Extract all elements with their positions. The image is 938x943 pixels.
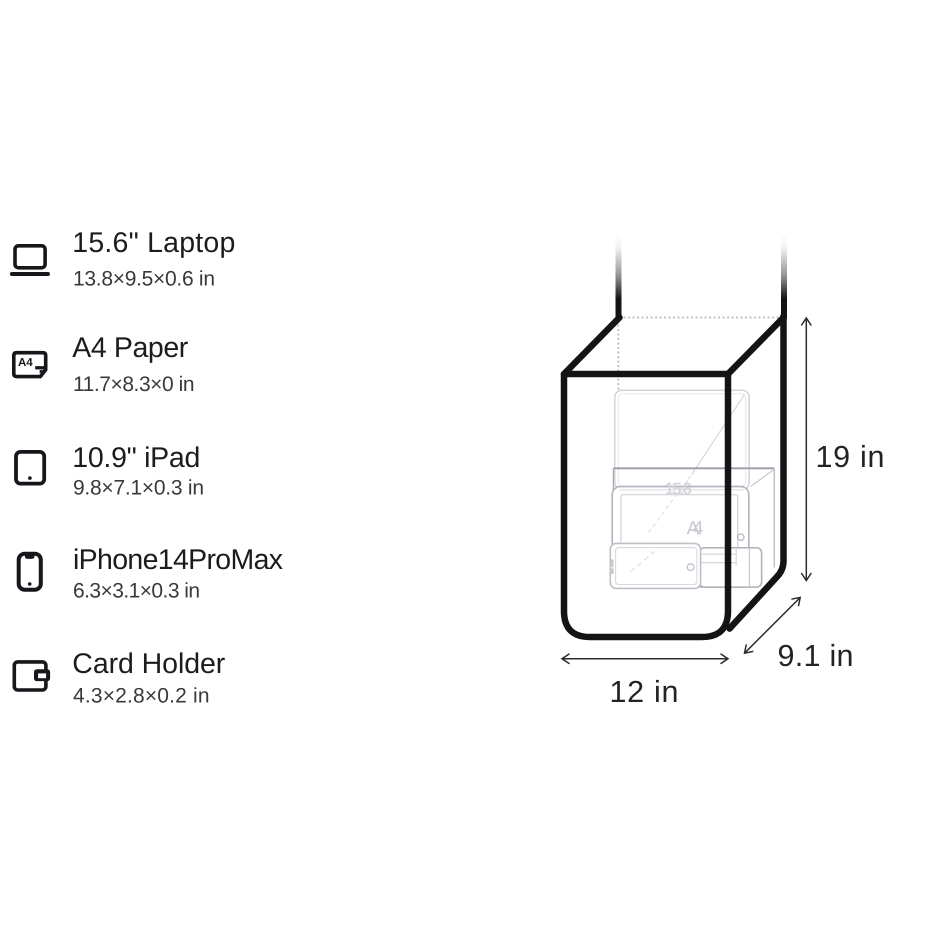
svg-text:iPhone14ProMax: iPhone14ProMax (73, 544, 283, 576)
svg-text:19 in: 19 in (816, 440, 885, 474)
svg-text:9.1 in: 9.1 in (778, 639, 854, 673)
svg-text:12 in: 12 in (610, 675, 679, 709)
svg-text:A4: A4 (687, 518, 704, 540)
svg-text:A4 Paper: A4 Paper (72, 332, 189, 364)
svg-text:Card Holder: Card Holder (72, 648, 226, 680)
svg-text:13.8×9.5×0.6 in: 13.8×9.5×0.6 in (73, 268, 215, 291)
svg-text:10.9" iPad: 10.9" iPad (72, 442, 200, 474)
svg-text:11.7×8.3×0 in: 11.7×8.3×0 in (73, 373, 195, 396)
svg-text:15.6: 15.6 (665, 480, 693, 499)
svg-text:4.3×2.8×0.2 in: 4.3×2.8×0.2 in (73, 685, 210, 708)
svg-text:15.6" Laptop: 15.6" Laptop (72, 227, 235, 259)
svg-text:A4: A4 (18, 357, 33, 369)
svg-text:9.8×7.1×0.3 in: 9.8×7.1×0.3 in (73, 477, 204, 500)
svg-text:6.3×3.1×0.3 in: 6.3×3.1×0.3 in (73, 580, 200, 603)
